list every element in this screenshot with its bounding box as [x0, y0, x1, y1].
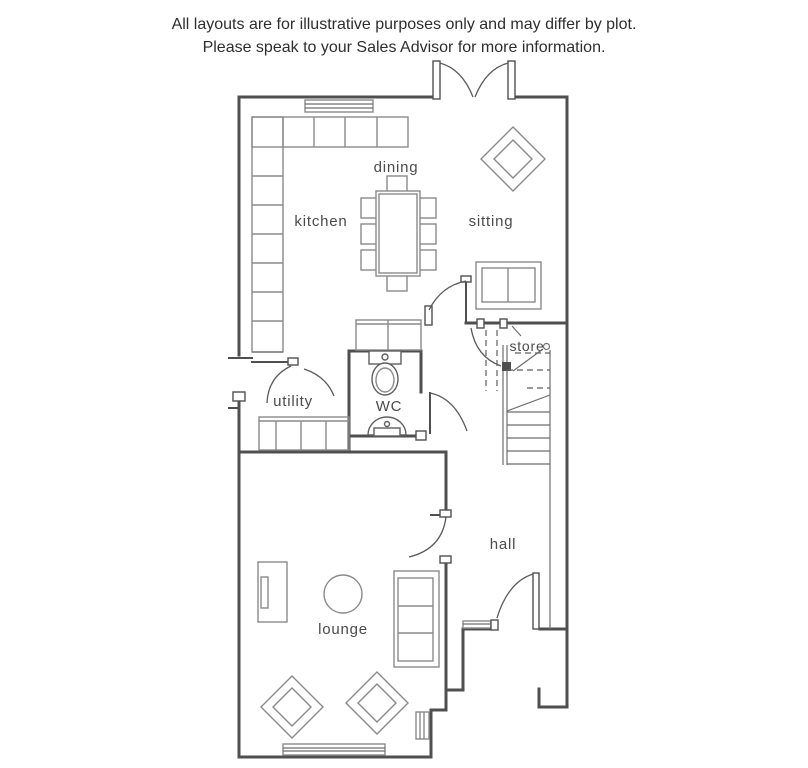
stairs-winder-line: [507, 395, 550, 411]
dining-hall-door-swing: [429, 281, 466, 310]
lounge-window: [283, 744, 385, 755]
dining-chair-right-1: [419, 198, 436, 218]
tv-unit: [258, 562, 287, 622]
lounge-round-table: [324, 575, 362, 613]
store-door-post-left: [477, 319, 484, 328]
disclaimer-line-1: All layouts are for illustrative purpose…: [172, 16, 637, 33]
room-label-dining: dining: [374, 159, 419, 176]
stairs-treads: [507, 412, 550, 464]
disclaimer-header: All layouts are for illustrative purpose…: [172, 16, 637, 56]
floorplan-page: All layouts are for illustrative purpose…: [0, 0, 808, 768]
french-door-swing-left: [440, 63, 473, 97]
room-label-sitting: sitting: [469, 213, 514, 230]
lounge-door-swing: [409, 517, 446, 557]
store-door: [471, 319, 507, 366]
room-label-utility: utility: [273, 393, 313, 410]
room-label-wc: WC: [376, 398, 403, 415]
dining-hall-door-post: [425, 306, 432, 325]
french-door-post-right: [508, 61, 515, 99]
front-door: [463, 573, 539, 630]
basin-drain: [385, 422, 390, 427]
right-wall-pier: [539, 689, 567, 707]
room-label-store: store: [509, 338, 544, 354]
kitchen-window: [305, 100, 373, 112]
kitchen-counter-left-dividers: [252, 176, 283, 321]
utility-counter: [259, 417, 349, 450]
lounge-sofa: [394, 571, 439, 667]
utility-door-post: [288, 358, 298, 365]
store-dashed-lines: [486, 330, 497, 391]
sitting-armchair: [481, 127, 545, 191]
kitchen-counter-top-dividers: [283, 117, 377, 147]
basin-base: [374, 428, 400, 436]
lounge-window-frame: [283, 744, 385, 755]
kitchen-window-glazing: [305, 104, 373, 108]
french-door-swing-right: [475, 63, 508, 97]
porch-return-wall: [446, 629, 463, 690]
lounge-door-cap-bottom: [440, 556, 451, 563]
lounge-armchair-2: [346, 672, 408, 734]
front-door-swing: [497, 574, 533, 618]
sideboard-lines: [356, 320, 421, 350]
front-door-post: [491, 620, 498, 630]
floorplan-canvas: All layouts are for illustrative purpose…: [0, 0, 808, 768]
dining-set: [361, 176, 436, 291]
toilet-flush-button: [382, 354, 388, 360]
dining-chair-right-3: [419, 250, 436, 270]
kitchen-window-frame: [305, 100, 373, 112]
utility-counter-dividers: [259, 421, 349, 450]
dining-chair-right-2: [419, 224, 436, 244]
store-leader-tick: [512, 326, 521, 336]
lounge-window-glazing: [283, 748, 385, 751]
french-door-post-left: [433, 61, 440, 99]
radiator: [416, 712, 429, 739]
dining-hall-door: [425, 276, 471, 325]
side-door-post: [233, 392, 245, 401]
front-door-leaf: [533, 573, 539, 629]
room-label-kitchen: kitchen: [294, 213, 347, 230]
disclaimer-line-2: Please speak to your Sales Advisor for m…: [203, 39, 606, 56]
room-label-hall: hall: [490, 536, 517, 553]
kitchen-counter-top: [252, 117, 408, 147]
lounge-door: [409, 510, 451, 563]
lounge-armchair-1: [261, 676, 323, 738]
utility-door-swing-right: [304, 369, 334, 396]
store-door-post-right: [500, 319, 507, 328]
wc-fixtures: [368, 351, 406, 436]
dining-table: [376, 191, 420, 276]
french-doors: [433, 61, 515, 99]
bottom-step-wall: [431, 710, 446, 757]
lounge-door-cap-top: [440, 510, 451, 517]
wc-door-post: [416, 431, 426, 440]
lounge-furniture: [258, 562, 439, 739]
wc-door: [416, 393, 467, 440]
utility-units: [259, 417, 349, 450]
wc-door-swing: [430, 393, 467, 431]
radiator-lines: [420, 712, 424, 739]
room-label-lounge: lounge: [318, 621, 368, 638]
sideboard: [356, 320, 421, 350]
